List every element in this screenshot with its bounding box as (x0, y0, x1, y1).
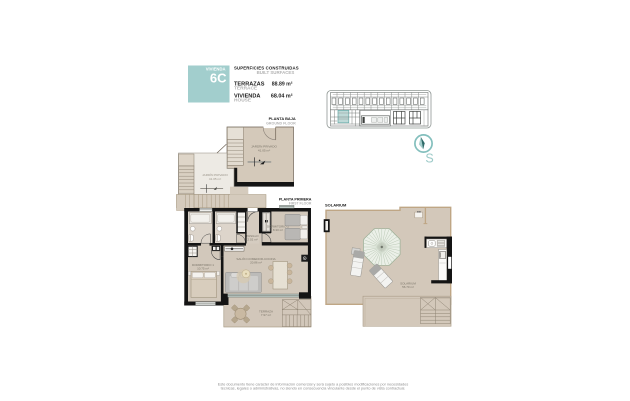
svg-text:41.05 m²: 41.05 m² (258, 148, 270, 152)
svg-text:2.02 m²: 2.02 m² (247, 238, 257, 242)
svg-text:7.97 m²: 7.97 m² (261, 313, 271, 317)
svg-text:TERRACE: TERRACE (234, 86, 258, 92)
svg-text:8.30 m²: 8.30 m² (273, 228, 283, 232)
svg-text:S: S (425, 152, 433, 166)
svg-text:GROUND FLOOR: GROUND FLOOR (266, 121, 296, 125)
svg-text:FIRST FLOOR: FIRST FLOOR (289, 201, 312, 205)
svg-text:88.89 m²: 88.89 m² (272, 81, 293, 87)
svg-text:técnicas, legales o administra: técnicas, legales o administrativas, no … (221, 387, 406, 391)
svg-text:68.04 m²: 68.04 m² (271, 93, 293, 99)
svg-text:10.75 m²: 10.75 m² (197, 267, 209, 271)
svg-text:SOLARIUM: SOLARIUM (325, 202, 347, 207)
svg-text:HOUSE: HOUSE (234, 98, 252, 104)
svg-text:56.70 m²: 56.70 m² (402, 285, 414, 289)
svg-text:20.86 m²: 20.86 m² (250, 260, 262, 264)
svg-text:41.05 m²: 41.05 m² (209, 177, 221, 181)
svg-text:PLANTA BAJA: PLANTA BAJA (269, 116, 296, 121)
svg-text:BUILT SURFACES: BUILT SURFACES (257, 70, 295, 75)
svg-text:6C: 6C (210, 70, 227, 85)
